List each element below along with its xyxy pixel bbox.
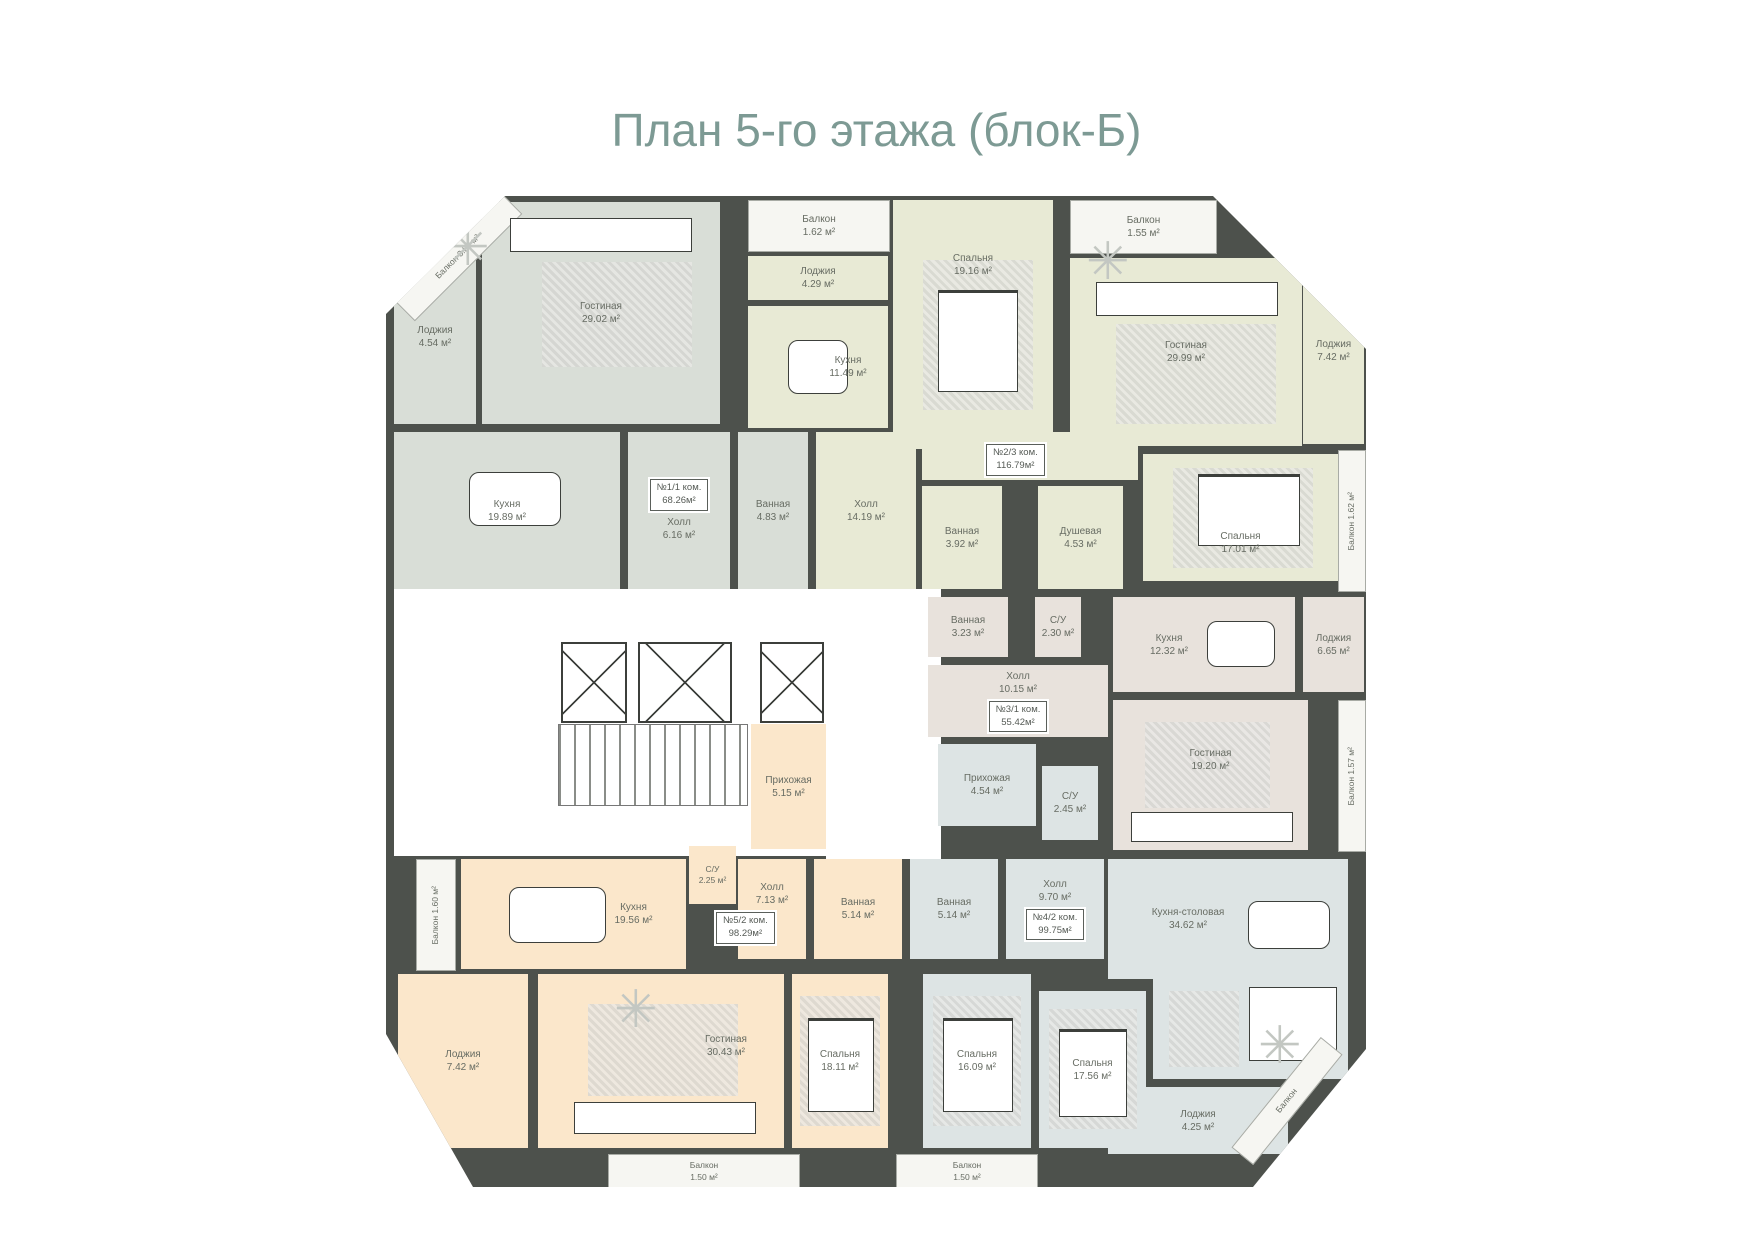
room-wc: С/У2.25 м² — [689, 846, 736, 904]
sofa — [574, 1102, 756, 1134]
plant-icon: ✳ — [1258, 1020, 1302, 1072]
room-living: Гостиная29.02 м² — [482, 202, 720, 424]
room-loggia: Лоджия4.29 м² — [748, 256, 888, 300]
apartment-number-badge: №2/3 ком.116.79м² — [986, 444, 1045, 476]
bed — [938, 290, 1018, 392]
room-bedroom: Спальня17.56 м² — [1039, 991, 1146, 1148]
room-wc: С/У2.45 м² — [1042, 766, 1098, 840]
room-kitchen: Кухня12.32 м² — [1113, 597, 1295, 692]
room-bathroom: Ванная3.92 м² — [922, 486, 1002, 589]
elevator-icon — [561, 642, 627, 723]
apartment-number-badge: №5/2 ком.98.29м² — [716, 912, 775, 944]
room-entry: Прихожая5.15 м² — [751, 724, 826, 849]
room-wc: С/У2.30 м² — [1035, 597, 1081, 657]
staircase — [558, 724, 748, 806]
room-bathroom: Ванная5.14 м² — [814, 859, 902, 959]
room-kitchen: Кухня19.89 м² — [394, 432, 620, 589]
apartment-number-badge: №4/2 ком.99.75м² — [1026, 909, 1085, 941]
room-bedroom: Спальня16.09 м² — [923, 974, 1031, 1148]
sofa — [1131, 812, 1293, 842]
room-loggia: Лоджия7.42 м² — [398, 974, 528, 1148]
room-bathroom: Ванная5.14 м² — [910, 859, 998, 959]
room-shower: Душевая4.53 м² — [1038, 486, 1123, 589]
room-hall: Холл10.15 м² №3/1 ком.55.42м² — [928, 665, 1108, 737]
dining-table — [1248, 901, 1330, 949]
room-hall: Холл7.13 м² — [738, 859, 806, 959]
room-balcony: Балкон 1.60 м² — [416, 859, 456, 971]
room-bedroom: Спальня18.11 м² — [792, 974, 888, 1148]
room-living: Гостиная19.20 м² — [1113, 700, 1308, 850]
room-hall: Холл14.19 м² — [816, 432, 916, 589]
room-balcony: Балкон1.62 м² — [748, 200, 890, 252]
room-loggia: Лоджия6.65 м² — [1303, 597, 1364, 692]
apartment-number-badge: №1/1 ком.68.26м² — [650, 479, 709, 511]
room-bathroom: Ванная3.23 м² — [928, 597, 1008, 657]
room-hall: №1/1 ком.68.26м² Холл6.16 м² — [628, 432, 730, 589]
room-kitchen: Кухня19.56 м² — [461, 859, 686, 969]
room-kitchen: Кухня11.49 м² — [748, 306, 888, 428]
elevator-icon — [638, 642, 732, 723]
room-kitchen-dining: Кухня-столовая34.62 м² — [1108, 859, 1348, 979]
room-bedroom: Спальня17.01 м² — [1143, 454, 1338, 581]
plant-icon: ✳ — [446, 222, 490, 274]
room-bathroom: Ванная4.83 м² — [738, 432, 808, 589]
room-living: Гостиная30.43 м² — [538, 974, 784, 1148]
sofa — [510, 218, 692, 252]
room-balcony: Балкон1.50 м² — [608, 1154, 800, 1189]
dining-table — [1207, 621, 1275, 667]
room-bedroom: Спальня19.16 м² — [893, 200, 1053, 449]
plant-icon: ✳ — [614, 984, 658, 1036]
room-loggia: Лоджия7.42 м² — [1303, 258, 1364, 444]
room-balcony: Балкон1.50 м² — [896, 1154, 1038, 1189]
plant-icon: ✳ — [1086, 236, 1130, 288]
dining-table — [509, 887, 606, 943]
page-title: План 5-го этажа (блок-Б) — [0, 103, 1753, 157]
room-balcony: Балкон 1.57 м² — [1338, 700, 1366, 852]
room-balcony: Балкон 1.62 м² — [1338, 450, 1366, 592]
room-entry: Прихожая4.54 м² — [938, 744, 1036, 826]
common-corridor — [826, 589, 941, 859]
apartment-number-badge: №3/1 ком.55.42м² — [989, 701, 1048, 733]
rug — [1169, 991, 1239, 1067]
elevator-icon — [760, 642, 824, 723]
room-hall: Холл9.70 м² №4/2 ком.99.75м² — [1006, 859, 1104, 959]
floor-plan: Балкон 3.82 м² Лоджия4.54 м² Гостиная29.… — [386, 196, 1366, 1187]
